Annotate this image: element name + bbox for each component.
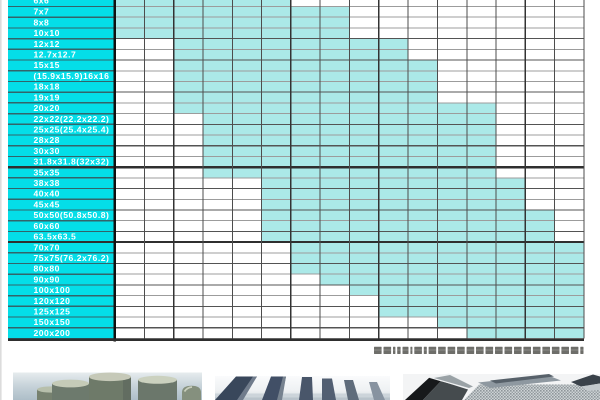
svg-text:60x60: 60x60 [34,221,60,231]
svg-text:25x25(25.4x25.4): 25x25(25.4x25.4) [34,125,110,135]
svg-text:19x19: 19x19 [34,92,60,102]
svg-text:38x38: 38x38 [34,178,60,188]
svg-text:28x28: 28x28 [34,135,60,145]
svg-text:40x40: 40x40 [34,189,60,199]
svg-text:125x125: 125x125 [34,307,71,317]
svg-text:12.7x12.7: 12.7x12.7 [34,50,77,60]
svg-text:31.8x31.8(32x32): 31.8x31.8(32x32) [34,157,110,167]
svg-text:63.5x63.5: 63.5x63.5 [34,232,77,242]
svg-text:8x8: 8x8 [34,17,50,27]
svg-text:70x70: 70x70 [34,242,60,252]
svg-text:120x120: 120x120 [34,296,71,306]
svg-text:80x80: 80x80 [34,264,60,274]
svg-text:(15.9x15.9)16x16: (15.9x15.9)16x16 [34,71,110,81]
svg-text:18x18: 18x18 [34,82,60,92]
svg-text:12x12: 12x12 [34,39,60,49]
svg-text:200x200: 200x200 [34,328,71,338]
svg-text:75x75(76.2x76.2): 75x75(76.2x76.2) [34,253,110,263]
svg-text:45x45: 45x45 [34,199,60,209]
svg-text:15x15: 15x15 [34,60,60,70]
svg-text:10x10: 10x10 [34,28,60,38]
svg-text:35x35: 35x35 [34,167,60,177]
svg-text:7x7: 7x7 [34,7,50,17]
svg-text:90x90: 90x90 [34,274,60,284]
svg-text:100x100: 100x100 [34,285,71,295]
svg-text:6x6: 6x6 [34,0,50,6]
svg-text:50x50(50.8x50.8): 50x50(50.8x50.8) [34,210,110,220]
svg-text:150x150: 150x150 [34,317,71,327]
svg-text:22x22(22.2x22.2): 22x22(22.2x22.2) [34,114,110,124]
svg-text:30x30: 30x30 [34,146,60,156]
svg-text:20x20: 20x20 [34,103,60,113]
